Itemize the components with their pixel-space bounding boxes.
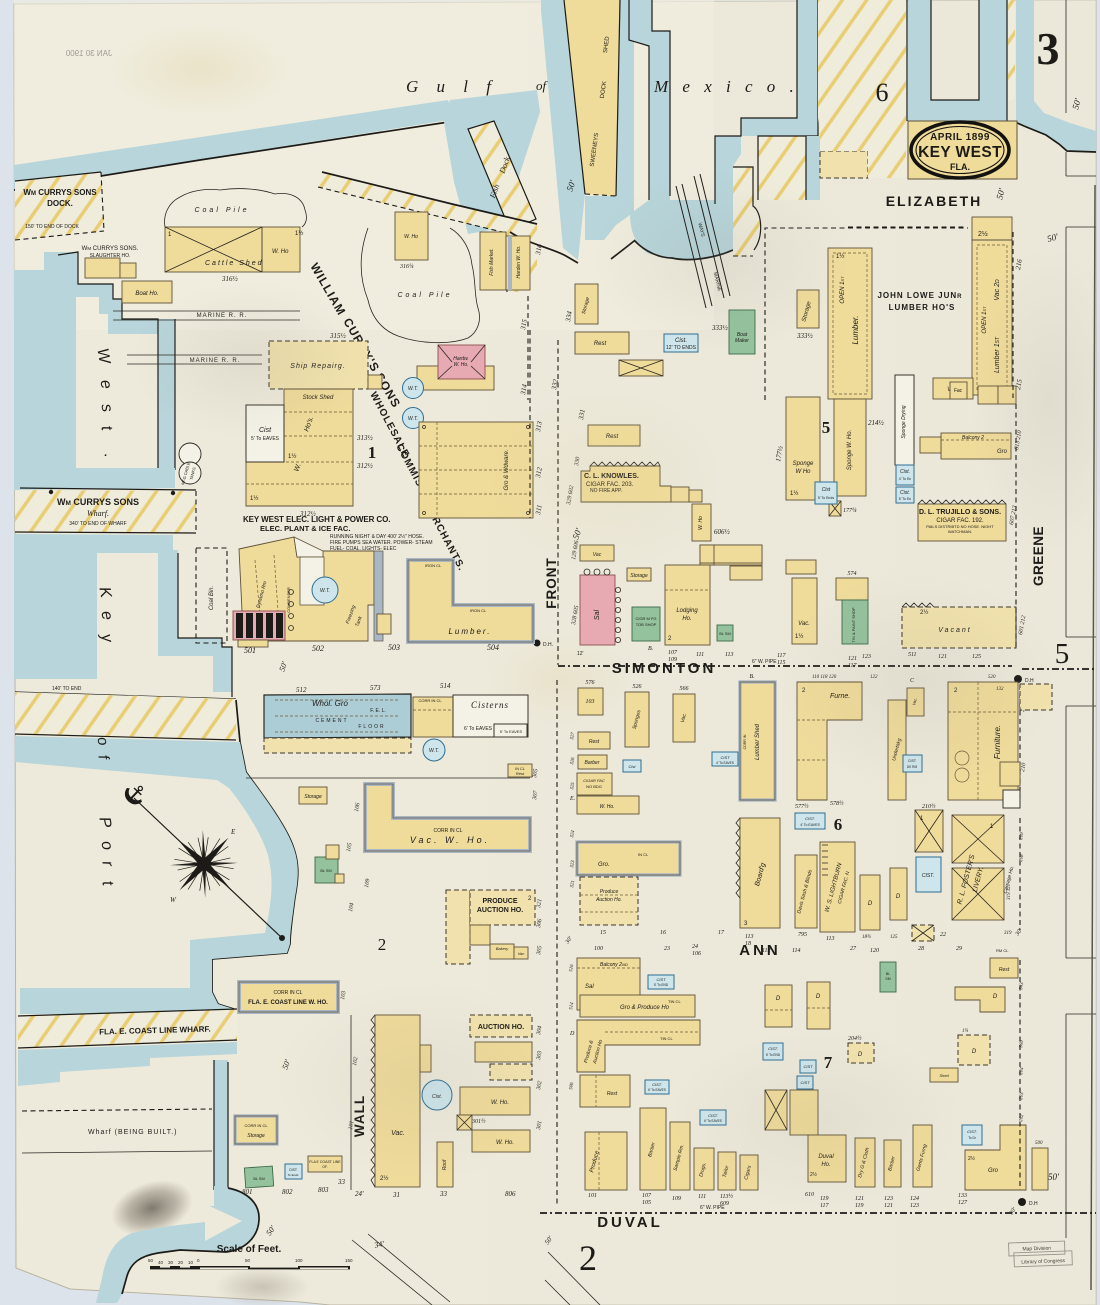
svg-text:17: 17 xyxy=(718,930,725,936)
svg-text:2½: 2½ xyxy=(978,230,988,238)
svg-text:573: 573 xyxy=(370,684,381,692)
svg-text:WM CURRYS SONS.: WM CURRYS SONS. xyxy=(82,246,139,252)
svg-text:111: 111 xyxy=(696,652,704,658)
svg-text:31: 31 xyxy=(392,1191,400,1199)
svg-text:23: 23 xyxy=(664,946,670,952)
svg-text:24: 24 xyxy=(692,943,698,950)
svg-text:2: 2 xyxy=(579,1238,597,1278)
svg-text:Storage: Storage xyxy=(630,573,648,579)
svg-text:Gro & Produce Ho: Gro & Produce Ho xyxy=(620,1005,670,1011)
svg-text:4' To EAVES: 4' To EAVES xyxy=(800,823,820,827)
svg-text:CIST: CIST xyxy=(720,755,730,760)
svg-text:4' To En: 4' To En xyxy=(899,477,912,481)
svg-text:Rest: Rest xyxy=(607,1091,618,1097)
svg-text:6' To EAVES: 6' To EAVES xyxy=(648,1088,666,1092)
svg-text:TIN CL: TIN CL xyxy=(660,1036,673,1041)
svg-text:6: 6 xyxy=(834,815,843,834)
svg-text:B.: B. xyxy=(749,674,754,680)
svg-text:D: D xyxy=(896,894,901,900)
svg-text:NO BDG: NO BDG xyxy=(586,784,602,789)
svg-text:109: 109 xyxy=(672,1196,681,1202)
svg-text:802: 802 xyxy=(282,1188,293,1196)
svg-text:100: 100 xyxy=(295,1258,303,1263)
svg-text:CIST.: CIST. xyxy=(805,816,815,821)
svg-text:502: 502 xyxy=(312,644,324,653)
svg-text:Coal Bin.: Coal Bin. xyxy=(209,586,215,610)
svg-text:CIST: CIST xyxy=(289,1168,298,1172)
svg-text:Rest: Rest xyxy=(999,967,1010,973)
svg-text:29: 29 xyxy=(956,946,962,952)
svg-text:FLOOR: FLOOR xyxy=(358,724,385,730)
svg-text:123: 123 xyxy=(910,1203,919,1209)
svg-text:Rest: Rest xyxy=(594,341,607,347)
svg-text:D.H: D.H xyxy=(1029,1201,1038,1207)
svg-text:113½: 113½ xyxy=(720,1193,734,1200)
svg-text:214½: 214½ xyxy=(868,419,885,427)
svg-text:107: 107 xyxy=(642,1193,652,1199)
svg-text:801: 801 xyxy=(242,1188,253,1196)
svg-text:Storage: Storage xyxy=(247,1133,265,1139)
svg-text:BL SM: BL SM xyxy=(719,632,730,636)
svg-text:ELEC. PLANT & ICE FAC.: ELEC. PLANT & ICE FAC. xyxy=(260,524,350,533)
svg-text:CEMENT: CEMENT xyxy=(315,718,348,724)
svg-text:501: 501 xyxy=(244,646,256,655)
svg-text:Rest: Rest xyxy=(516,771,525,776)
svg-text:50': 50' xyxy=(1048,1172,1060,1182)
svg-text:Gro: Gro xyxy=(988,1168,999,1174)
svg-text:IRON CL: IRON CL xyxy=(425,563,442,568)
svg-text:30: 30 xyxy=(168,1260,174,1265)
svg-text:5' To En: 5' To En xyxy=(899,497,912,501)
svg-text:D: D xyxy=(776,996,781,1002)
svg-text:KEY WEST ELEC. LIGHT & POWER C: KEY WEST ELEC. LIGHT & POWER CO. xyxy=(243,515,390,524)
svg-text:CIGR M FG: CIGR M FG xyxy=(635,616,656,621)
svg-text:24': 24' xyxy=(355,1190,364,1198)
svg-text:33: 33 xyxy=(439,1190,448,1198)
svg-text:Cattle Shed: Cattle Shed xyxy=(205,260,264,267)
svg-text:M e x i c o .: M e x i c o . xyxy=(653,77,799,96)
svg-text:316¼: 316¼ xyxy=(399,264,414,270)
svg-text:1½: 1½ xyxy=(250,495,258,502)
svg-text:5' To EAVES: 5' To EAVES xyxy=(500,729,523,734)
svg-text:Coal Pile: Coal Pile xyxy=(397,292,452,299)
svg-text:FLA. E. COAST LINE W. HO.: FLA. E. COAST LINE W. HO. xyxy=(248,1000,328,1006)
svg-text:27: 27 xyxy=(850,946,857,952)
svg-text:16: 16 xyxy=(660,930,666,936)
svg-text:WATCHMAN.: WATCHMAN. xyxy=(948,529,972,534)
svg-text:Produce: Produce xyxy=(600,889,619,895)
svg-text:106: 106 xyxy=(692,951,701,957)
svg-text:576: 576 xyxy=(586,680,595,686)
svg-text:504: 504 xyxy=(487,643,499,652)
svg-text:TOB SHOP: TOB SHOP xyxy=(636,622,657,627)
svg-text:50: 50 xyxy=(148,1258,154,1263)
svg-text:333½: 333½ xyxy=(796,332,814,340)
svg-text:5: 5 xyxy=(822,418,831,437)
svg-text:PRODUCE: PRODUCE xyxy=(482,898,517,905)
svg-text:105: 105 xyxy=(642,1200,651,1206)
svg-text:806: 806 xyxy=(505,1190,516,1198)
svg-text:Auction Ho.: Auction Ho. xyxy=(595,897,622,903)
svg-text:Fish Market.: Fish Market. xyxy=(489,248,495,276)
svg-text:18¾: 18¾ xyxy=(862,935,871,940)
svg-text:BL SM: BL SM xyxy=(253,1177,264,1181)
svg-text:577½: 577½ xyxy=(795,803,809,810)
svg-text:Vac: Vac xyxy=(518,951,525,956)
svg-text:2½: 2½ xyxy=(968,1155,976,1162)
svg-text:CIST.: CIST. xyxy=(652,1082,662,1087)
svg-text:Fac: Fac xyxy=(954,388,963,394)
svg-text:BL SM: BL SM xyxy=(320,869,331,873)
svg-text:RM CL: RM CL xyxy=(996,948,1009,953)
svg-text:177¼: 177¼ xyxy=(843,508,857,514)
svg-text:W.T.: W.T. xyxy=(408,386,418,392)
svg-text:566: 566 xyxy=(680,686,689,692)
svg-text:BL: BL xyxy=(886,972,890,976)
svg-text:125: 125 xyxy=(890,935,898,940)
svg-text:1½: 1½ xyxy=(295,230,303,237)
svg-text:CORR IN CL: CORR IN CL xyxy=(434,828,463,834)
svg-text:D. L. TRUJILLO & SONS.: D. L. TRUJILLO & SONS. xyxy=(919,509,1001,516)
svg-text:10: 10 xyxy=(188,1260,194,1265)
svg-text:To Ends: To Ends xyxy=(288,1173,299,1177)
svg-text:W.T.: W.T. xyxy=(408,416,418,422)
svg-text:5' To END: 5' To END xyxy=(654,983,669,987)
svg-text:Sal: Sal xyxy=(594,610,601,621)
svg-text:124: 124 xyxy=(910,1195,919,1202)
svg-text:FLA.: FLA. xyxy=(950,162,970,172)
svg-text:15: 15 xyxy=(600,930,606,936)
svg-text:W Ho: W Ho xyxy=(796,469,812,475)
svg-text:Storage: Storage xyxy=(304,794,322,800)
svg-text:150: 150 xyxy=(345,1258,353,1263)
svg-text:CIST.: CIST. xyxy=(922,873,934,879)
svg-text:20: 20 xyxy=(178,1260,184,1265)
svg-text:W. Ho: W. Ho xyxy=(404,234,418,240)
svg-text:Barber: Barber xyxy=(584,760,599,766)
svg-text:4' To EAVES: 4' To EAVES xyxy=(716,761,734,765)
svg-text:112: 112 xyxy=(762,948,771,954)
svg-text:1: 1 xyxy=(368,443,377,462)
svg-text:512: 512 xyxy=(296,686,307,694)
svg-text:D: D xyxy=(993,994,998,1000)
svg-text:Cisterns: Cisterns xyxy=(471,700,509,710)
svg-text:Ho.: Ho. xyxy=(682,616,691,622)
svg-text:114: 114 xyxy=(792,947,801,954)
svg-text:1½: 1½ xyxy=(288,453,296,460)
svg-text:AUCTION HO.: AUCTION HO. xyxy=(477,907,523,914)
svg-text:150' TO END OF DOCK: 150' TO END OF DOCK xyxy=(25,224,79,230)
svg-text:LUMBER HO'S: LUMBER HO'S xyxy=(889,303,956,312)
svg-text:OF.: OF. xyxy=(322,1165,327,1169)
svg-text:140' TO END: 140' TO END xyxy=(52,686,82,692)
svg-text:312½: 312½ xyxy=(356,462,374,470)
svg-text:SIMONTON: SIMONTON xyxy=(612,660,717,677)
svg-text:B.: B. xyxy=(648,646,653,652)
svg-text:578½: 578½ xyxy=(830,800,844,807)
svg-text:100: 100 xyxy=(594,946,603,952)
svg-text:133: 133 xyxy=(958,1193,967,1199)
svg-text:.: . xyxy=(104,443,108,460)
svg-text:CORR IN CL: CORR IN CL xyxy=(274,990,303,996)
svg-text:313½: 313½ xyxy=(356,434,374,442)
svg-text:Rest: Rest xyxy=(589,739,600,745)
svg-text:Cist.: Cist. xyxy=(900,469,910,475)
svg-text:Boat Ho.: Boat Ho. xyxy=(135,291,158,297)
svg-text:2: 2 xyxy=(378,935,387,954)
svg-text:FRONT: FRONT xyxy=(544,557,559,609)
svg-text:E.: E. xyxy=(569,796,575,802)
svg-text:40: 40 xyxy=(158,1260,164,1265)
svg-text:319 321: 319 321 xyxy=(1007,884,1012,900)
svg-text:500: 500 xyxy=(1035,1141,1043,1146)
svg-text:33: 33 xyxy=(337,1178,346,1186)
svg-text:TIN CL: TIN CL xyxy=(668,999,681,1004)
svg-text:CORR IN: CORR IN xyxy=(743,734,747,749)
svg-text:DUVAL: DUVAL xyxy=(597,1214,663,1231)
svg-text:503: 503 xyxy=(388,643,400,652)
svg-text:50: 50 xyxy=(245,1258,251,1263)
svg-text:6' To EAVES: 6' To EAVES xyxy=(464,726,493,732)
svg-text:Sponge: Sponge xyxy=(793,461,814,467)
svg-text:D: D xyxy=(569,1031,575,1037)
svg-text:113: 113 xyxy=(725,652,734,658)
svg-text:DOCK.: DOCK. xyxy=(47,199,73,208)
svg-text:W. Ho.: W. Ho. xyxy=(599,804,614,810)
svg-text:W. Ho.: W. Ho. xyxy=(453,362,468,368)
svg-text:SM: SM xyxy=(885,977,890,981)
svg-text:D: D xyxy=(816,994,821,1000)
svg-text:574: 574 xyxy=(848,570,857,577)
svg-text:120: 120 xyxy=(870,948,879,954)
svg-text:CIGAR FAC: CIGAR FAC xyxy=(583,778,605,783)
svg-text:E: E xyxy=(230,828,236,836)
svg-text:22: 22 xyxy=(940,932,946,938)
svg-text:Sal: Sal xyxy=(585,984,594,990)
svg-text:1½: 1½ xyxy=(790,490,798,497)
svg-text:IRON CL: IRON CL xyxy=(470,608,487,613)
svg-text:28: 28 xyxy=(918,946,924,952)
svg-text:210½: 210½ xyxy=(922,803,936,810)
svg-text:Lodging: Lodging xyxy=(676,608,698,614)
svg-text:ANN: ANN xyxy=(739,942,781,959)
svg-text:Lumber.: Lumber. xyxy=(851,315,860,344)
svg-text:101: 101 xyxy=(588,1193,597,1199)
svg-text:CIST: CIST xyxy=(656,977,666,982)
svg-text:KEY WEST: KEY WEST xyxy=(918,144,1002,161)
svg-text:Whol. Gro: Whol. Gro xyxy=(312,699,349,708)
svg-text:113: 113 xyxy=(745,934,754,940)
svg-text:803: 803 xyxy=(318,1186,329,1194)
svg-text:JOHN LOWE JUNR: JOHN LOWE JUNR xyxy=(877,291,962,300)
svg-text:RUNNING NIGHT & DAY 400' 2½" H: RUNNING NIGHT & DAY 400' 2½" HOSE. xyxy=(330,533,424,540)
svg-text:Bakery: Bakery xyxy=(496,946,509,951)
svg-text:Sponge Drying: Sponge Drying xyxy=(901,405,907,438)
svg-text:113: 113 xyxy=(826,936,835,942)
svg-text:ELIZABETH: ELIZABETH xyxy=(886,193,983,209)
svg-text:6" W. PIPE: 6" W. PIPE xyxy=(752,659,777,665)
svg-text:Coal Pile: Coal Pile xyxy=(194,207,249,214)
svg-text:606½: 606½ xyxy=(714,528,731,536)
svg-text:Scale of Feet.: Scale of Feet. xyxy=(217,1244,282,1255)
svg-text:Wharf.: Wharf. xyxy=(87,509,109,518)
svg-text:795: 795 xyxy=(798,932,807,938)
svg-text:F. E. L.: F. E. L. xyxy=(370,708,386,714)
svg-text:D: D xyxy=(868,901,873,907)
svg-text:3: 3 xyxy=(1037,23,1060,74)
svg-text:107: 107 xyxy=(668,650,678,656)
svg-text:127: 127 xyxy=(958,1200,968,1206)
svg-text:1¾: 1¾ xyxy=(962,1029,969,1034)
svg-text:IN CL: IN CL xyxy=(638,852,649,857)
svg-text:JAN 30 1900: JAN 30 1900 xyxy=(65,49,112,58)
svg-text:Cist.: Cist. xyxy=(900,490,910,496)
svg-text:Map Division: Map Division xyxy=(1022,1246,1051,1253)
svg-text:CORR IN CL: CORR IN CL xyxy=(244,1123,268,1128)
svg-text:Lumber Shed: Lumber Shed xyxy=(755,723,761,760)
svg-text:D.H.: D.H. xyxy=(543,642,553,648)
svg-text:111: 111 xyxy=(698,1194,706,1200)
svg-text:Lumber.: Lumber. xyxy=(448,627,491,636)
svg-text:121: 121 xyxy=(884,1203,893,1209)
svg-text:Cist: Cist xyxy=(629,764,637,769)
svg-text:514: 514 xyxy=(440,682,451,690)
svg-text:W.T.: W.T. xyxy=(320,588,330,594)
svg-text:APRIL 1899: APRIL 1899 xyxy=(930,132,990,143)
svg-text:6" W. PIPE: 6" W. PIPE xyxy=(700,1205,725,1211)
svg-text:W. Ho: W. Ho xyxy=(272,249,289,255)
svg-text:5' To Ends: 5' To Ends xyxy=(818,496,834,500)
svg-text:Gro.: Gro. xyxy=(598,862,610,868)
svg-text:To Dr: To Dr xyxy=(968,1136,977,1140)
svg-text:Wharf (BEING BUILT.): Wharf (BEING BUILT.) xyxy=(88,1129,178,1136)
svg-text:319: 319 xyxy=(1004,931,1012,936)
svg-text:Cist: Cist xyxy=(822,487,831,493)
svg-text:D: D xyxy=(972,1049,977,1055)
svg-text:103: 103 xyxy=(586,699,595,705)
svg-text:Harden W. Ho.: Harden W. Ho. xyxy=(516,246,522,279)
svg-text:Vac. W. Ho.: Vac. W. Ho. xyxy=(410,835,490,845)
svg-text:CORR IN CL: CORR IN CL xyxy=(418,698,442,703)
svg-text:6: 6 xyxy=(876,78,889,107)
svg-text:W.T.: W.T. xyxy=(429,748,439,754)
svg-text:526: 526 xyxy=(633,684,642,690)
svg-text:Sponge W. Ho.: Sponge W. Ho. xyxy=(847,430,853,470)
svg-text:12': 12' xyxy=(577,651,584,657)
svg-text:G u l f: G u l f xyxy=(406,77,498,96)
svg-text:340' TO END OF WHARF: 340' TO END OF WHARF xyxy=(69,521,126,527)
